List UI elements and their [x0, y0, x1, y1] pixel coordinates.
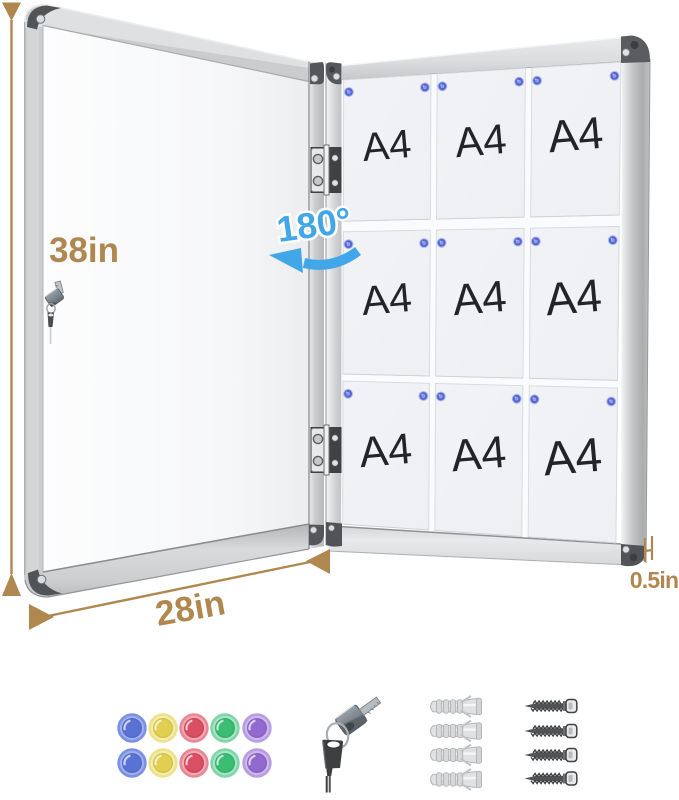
svg-text:A4: A4: [541, 429, 604, 487]
svg-text:A4: A4: [360, 122, 413, 170]
svg-text:A4: A4: [546, 107, 605, 163]
svg-text:0.5in: 0.5in: [630, 567, 678, 593]
svg-text:38in: 38in: [49, 231, 119, 270]
svg-text:A4: A4: [543, 269, 604, 326]
svg-text:A4: A4: [449, 426, 508, 482]
svg-text:A4: A4: [451, 272, 509, 326]
svg-text:A4: A4: [453, 115, 508, 166]
svg-text:A4: A4: [360, 274, 414, 324]
svg-text:A4: A4: [357, 425, 414, 477]
